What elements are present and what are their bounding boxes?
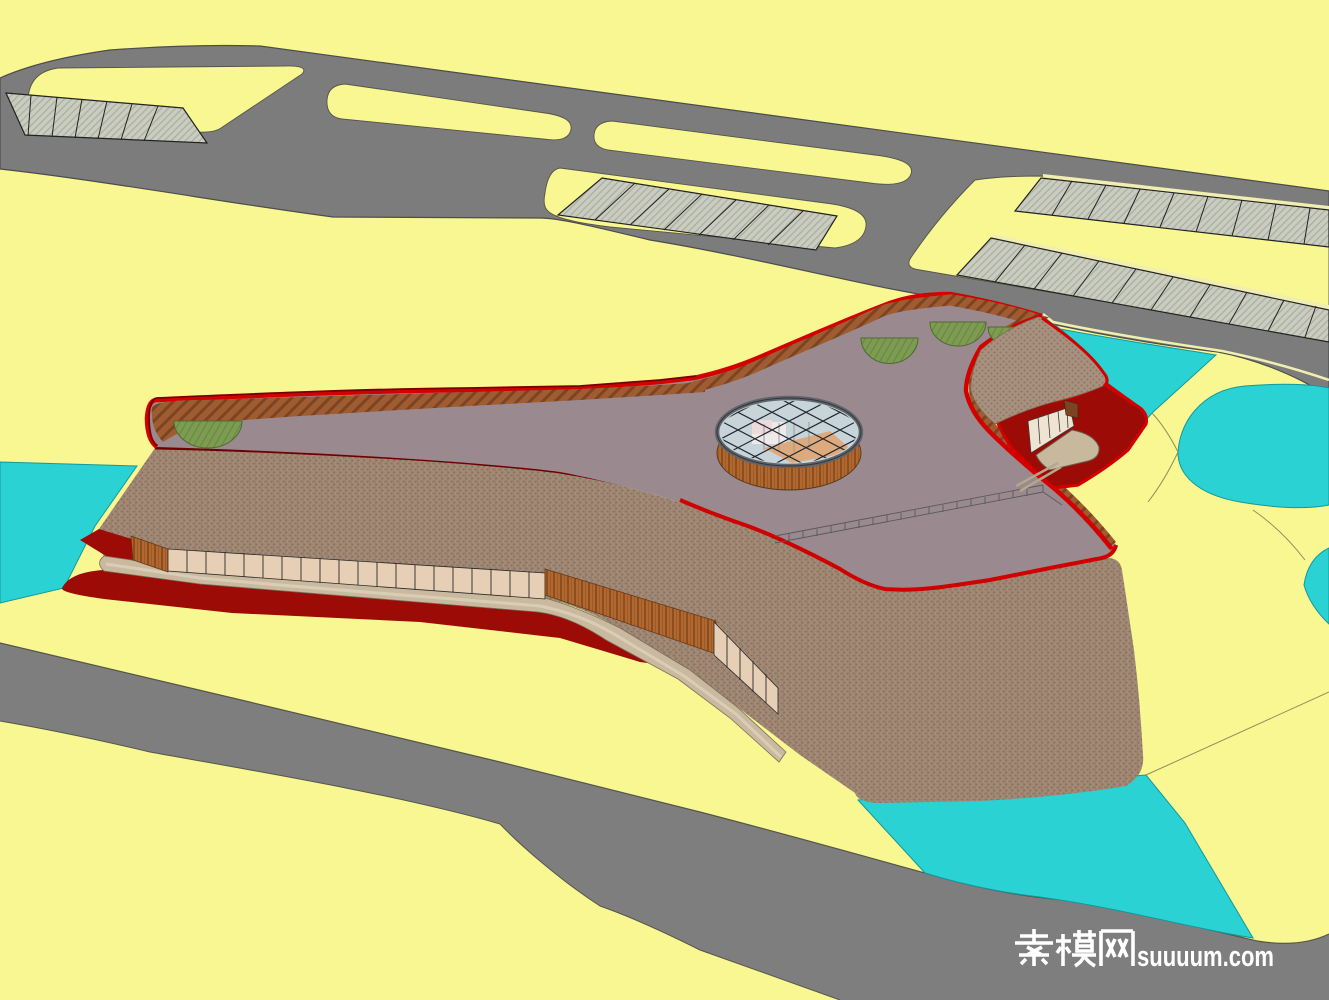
svg-text:suuuum.com: suuuum.com — [1137, 941, 1274, 973]
